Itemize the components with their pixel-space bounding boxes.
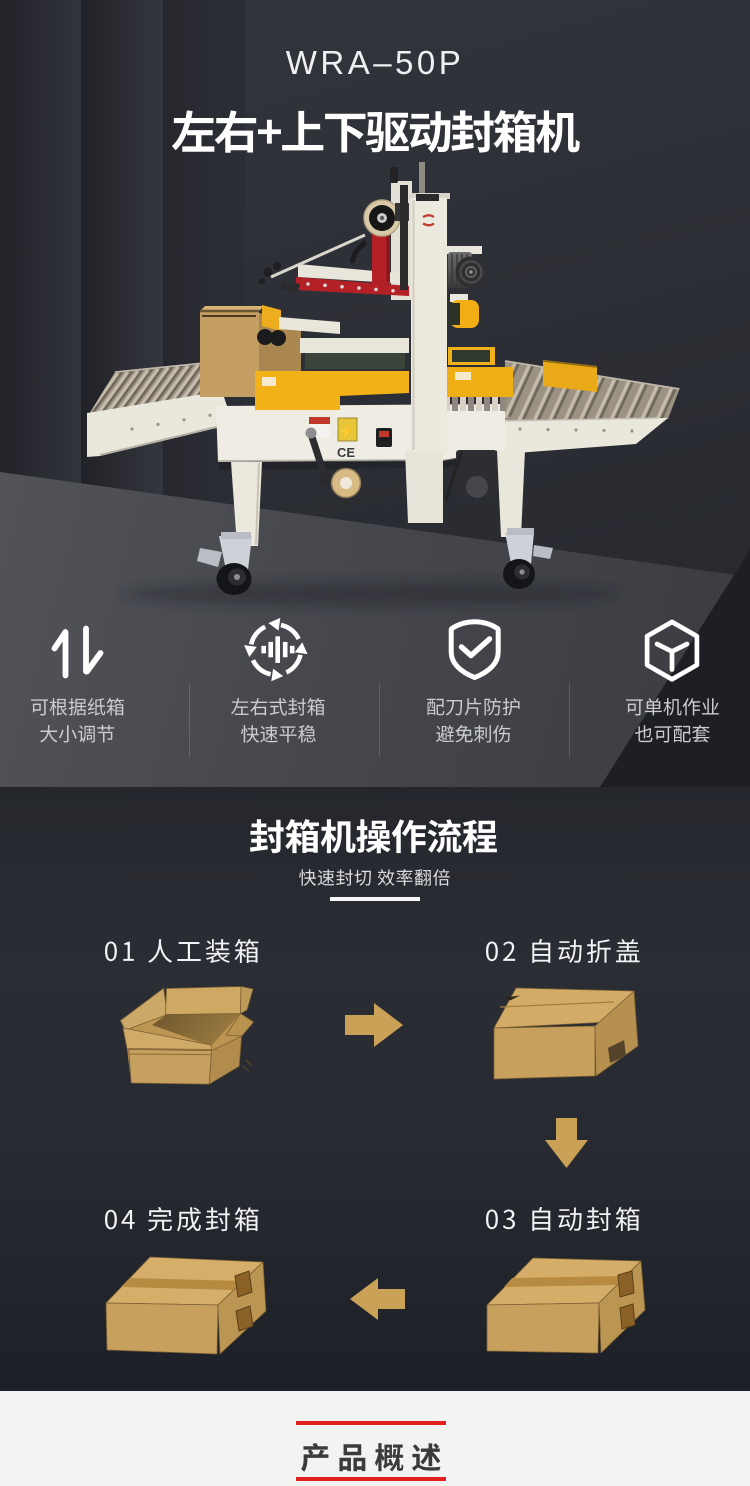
svg-text:CE: CE <box>337 445 355 460</box>
svg-text:⚡: ⚡ <box>339 424 355 440</box>
